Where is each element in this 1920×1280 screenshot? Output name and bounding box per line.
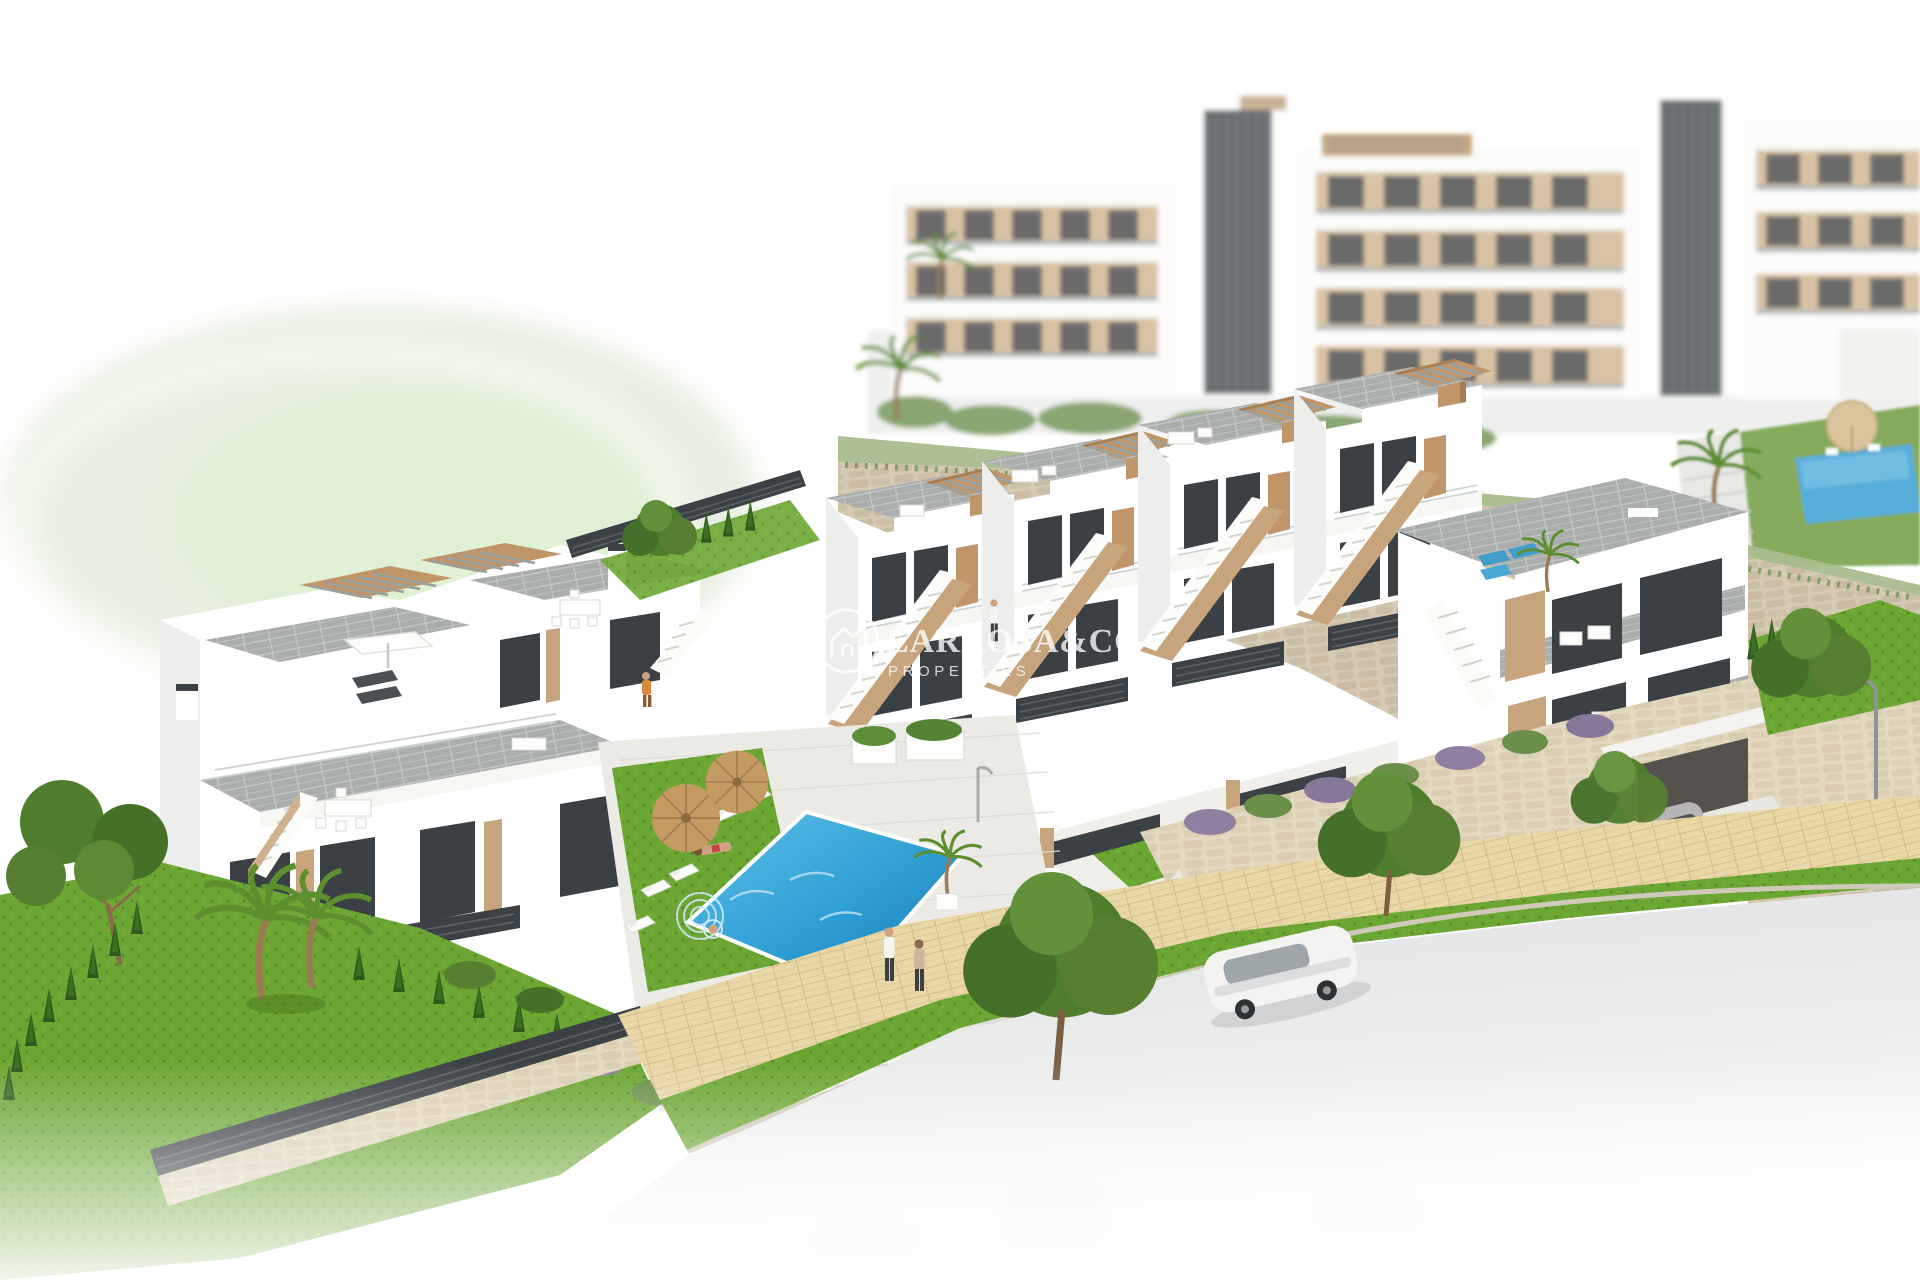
render-canvas: LARROSA&CO PROPERTIES [0, 0, 1920, 1280]
aerial-render: LARROSA&CO PROPERTIES [0, 0, 1920, 1280]
apartment-block-left [890, 185, 1176, 397]
bottom-fade [0, 1060, 1920, 1280]
watermark-tagline: PROPERTIES [888, 663, 1030, 680]
apartment-stair-tower-2 [1640, 85, 1744, 397]
apartment-block-mid [1300, 134, 1640, 398]
watermark-brand: LARROSA&CO [886, 623, 1142, 660]
apartment-block-right [1744, 120, 1920, 400]
apartment-stair-tower-1 [1176, 95, 1300, 397]
